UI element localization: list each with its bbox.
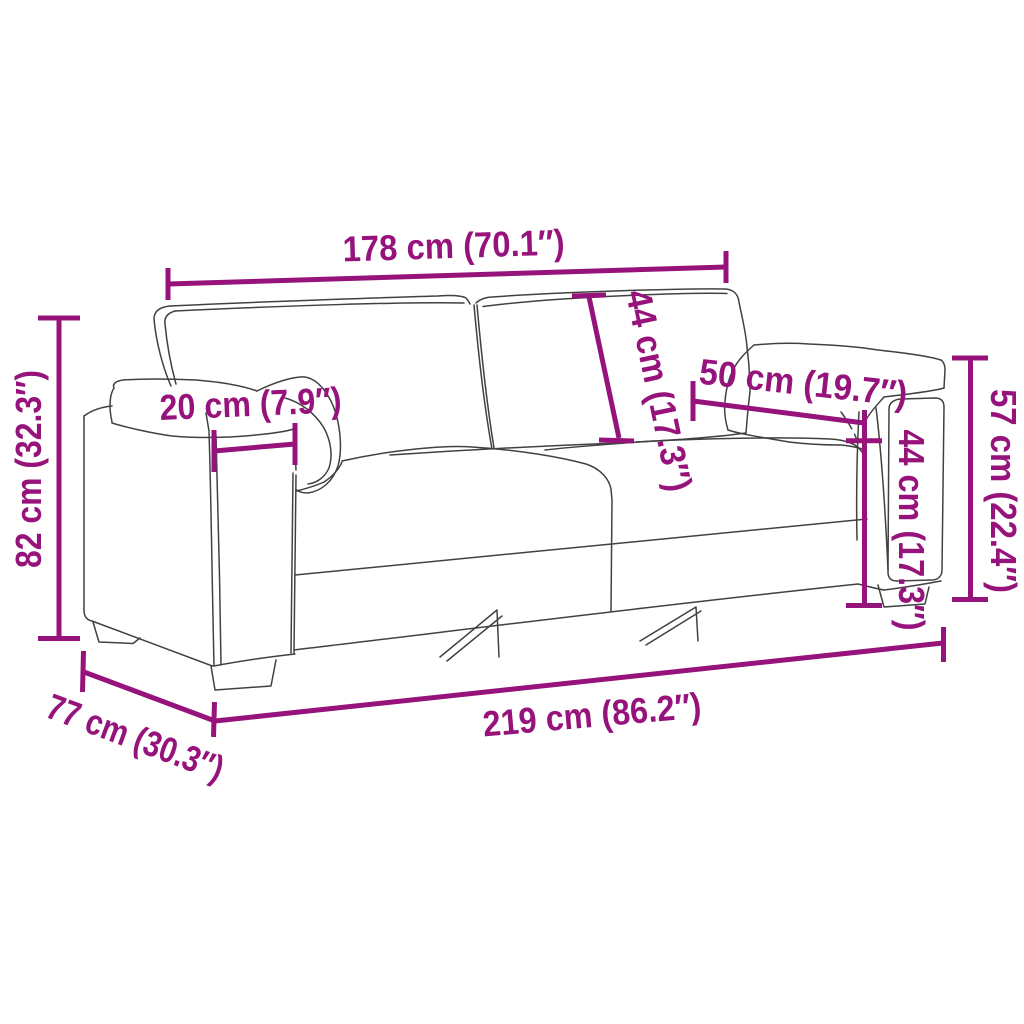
svg-text:82 cm (32.3″): 82 cm (32.3″) <box>8 370 49 568</box>
svg-text:44 cm (17.3″): 44 cm (17.3″) <box>891 430 932 631</box>
svg-text:178 cm (70.1″): 178 cm (70.1″) <box>342 222 565 270</box>
svg-text:20 cm (7.9″): 20 cm (7.9″) <box>159 379 343 428</box>
svg-text:57 cm (22.4″): 57 cm (22.4″) <box>983 389 1024 593</box>
